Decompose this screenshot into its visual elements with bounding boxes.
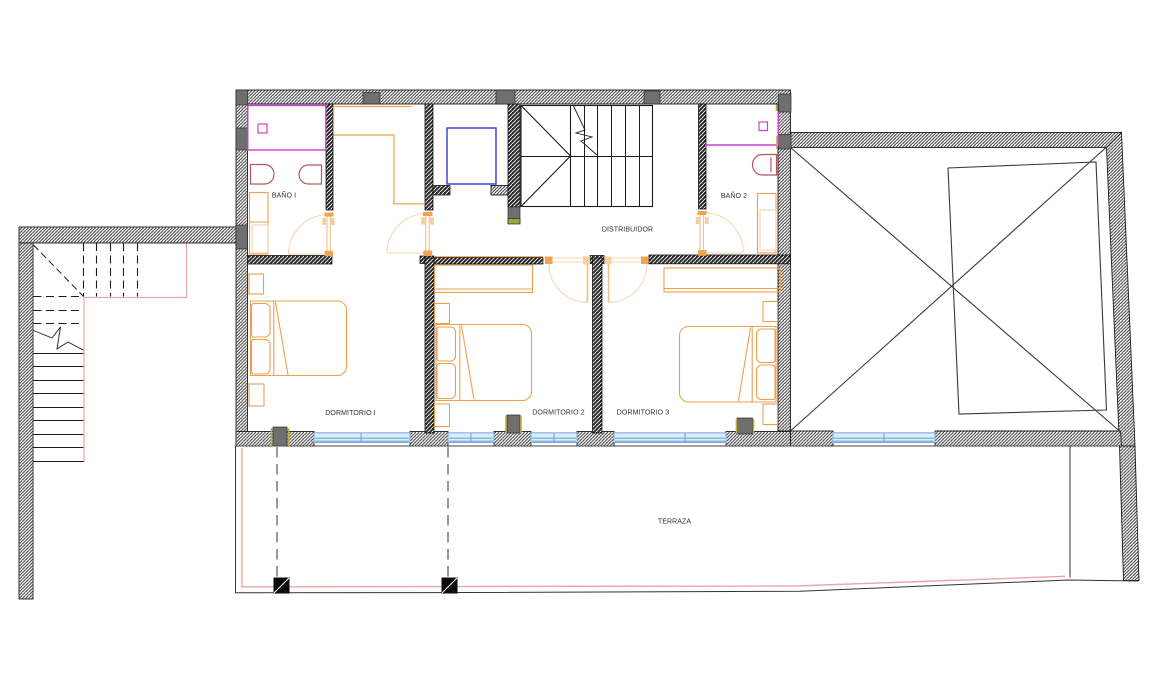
svg-text:TERRAZA: TERRAZA (658, 518, 692, 525)
svg-text:BAÑO 2: BAÑO 2 (721, 191, 747, 200)
svg-text:DORMITORIO 2: DORMITORIO 2 (532, 410, 584, 417)
svg-text:DISTRIBUIDOR: DISTRIBUIDOR (602, 227, 653, 234)
svg-text:BAÑO I: BAÑO I (272, 190, 296, 199)
svg-text:DORMITORIO 3: DORMITORIO 3 (617, 410, 669, 417)
svg-text:DORMITORIO I: DORMITORIO I (325, 410, 375, 417)
